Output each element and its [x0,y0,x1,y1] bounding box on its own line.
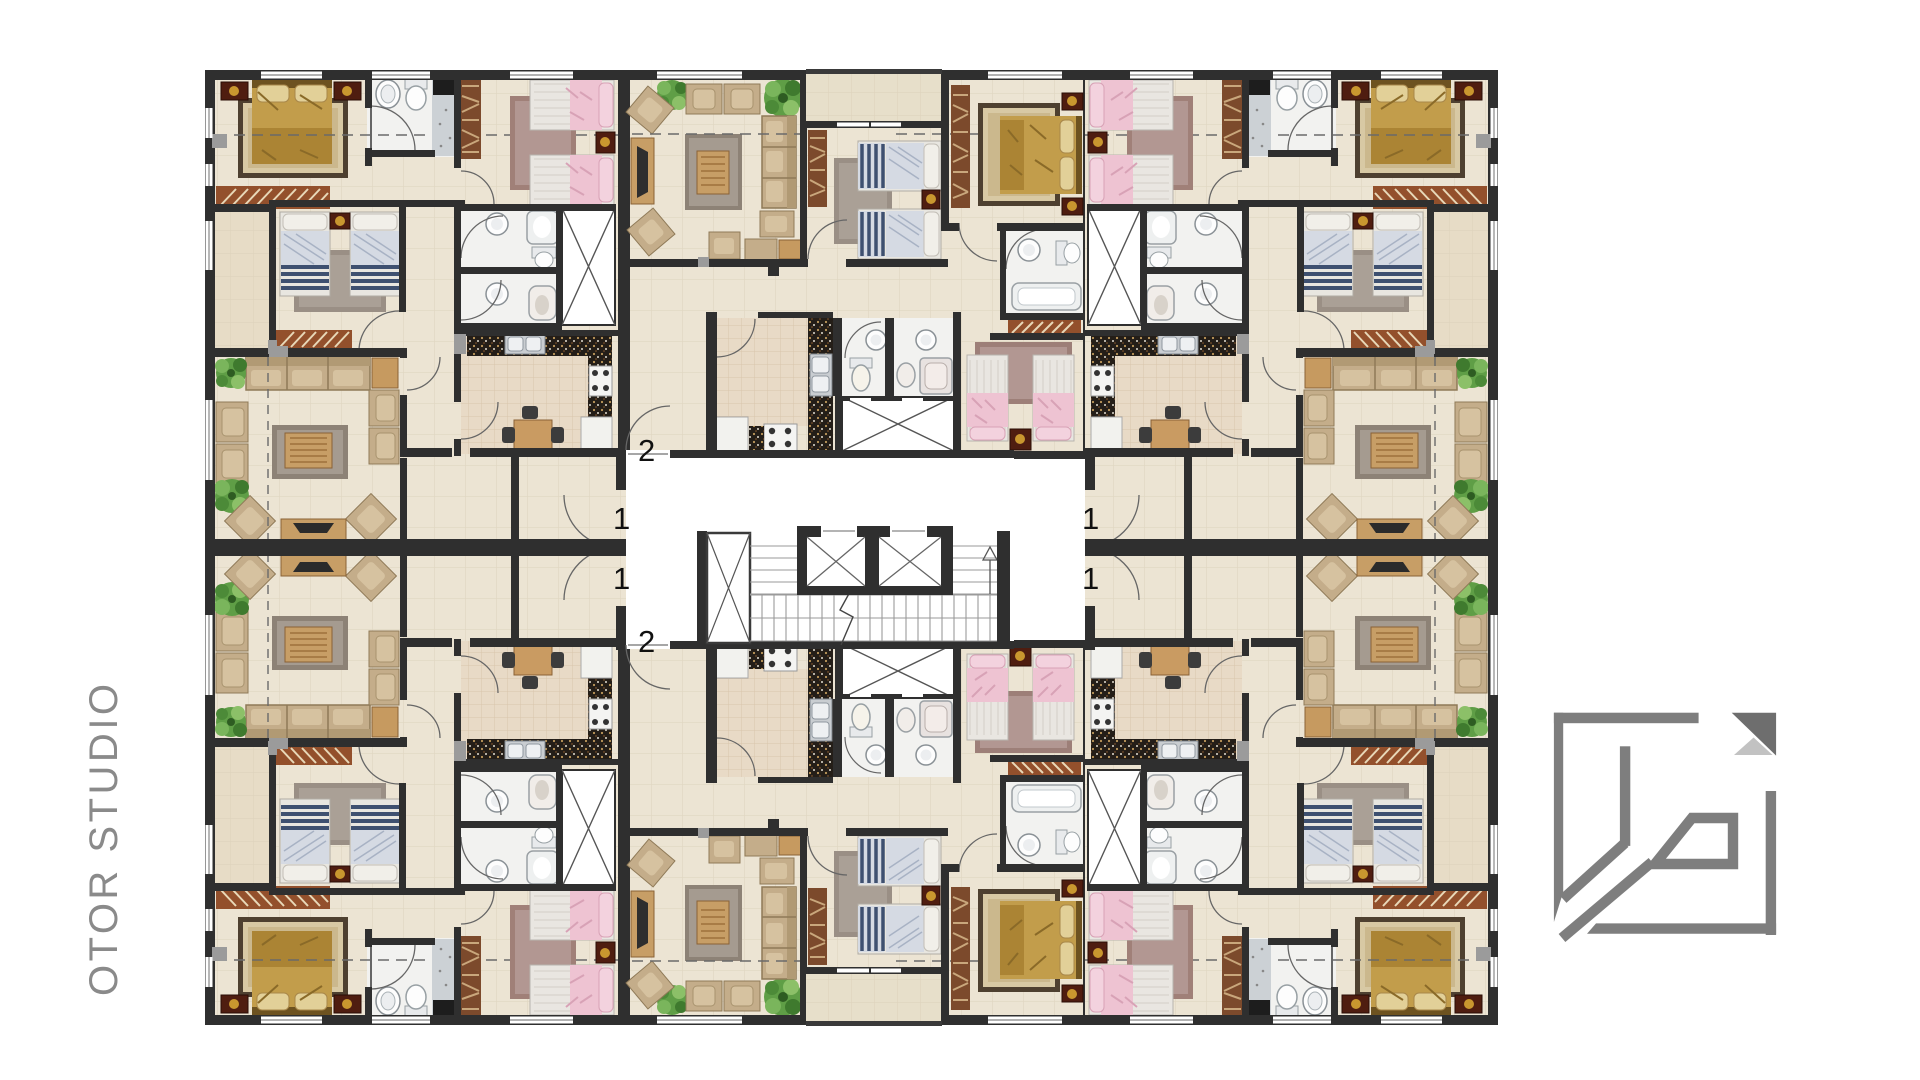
svg-text:2: 2 [638,624,655,659]
svg-text:1: 1 [1082,561,1099,596]
svg-text:1: 1 [1082,501,1099,536]
svg-text:2: 2 [638,433,655,468]
svg-text:1: 1 [613,501,630,536]
svg-text:OTOR STUDIO: OTOR STUDIO [82,680,126,996]
svg-text:1: 1 [613,561,630,596]
